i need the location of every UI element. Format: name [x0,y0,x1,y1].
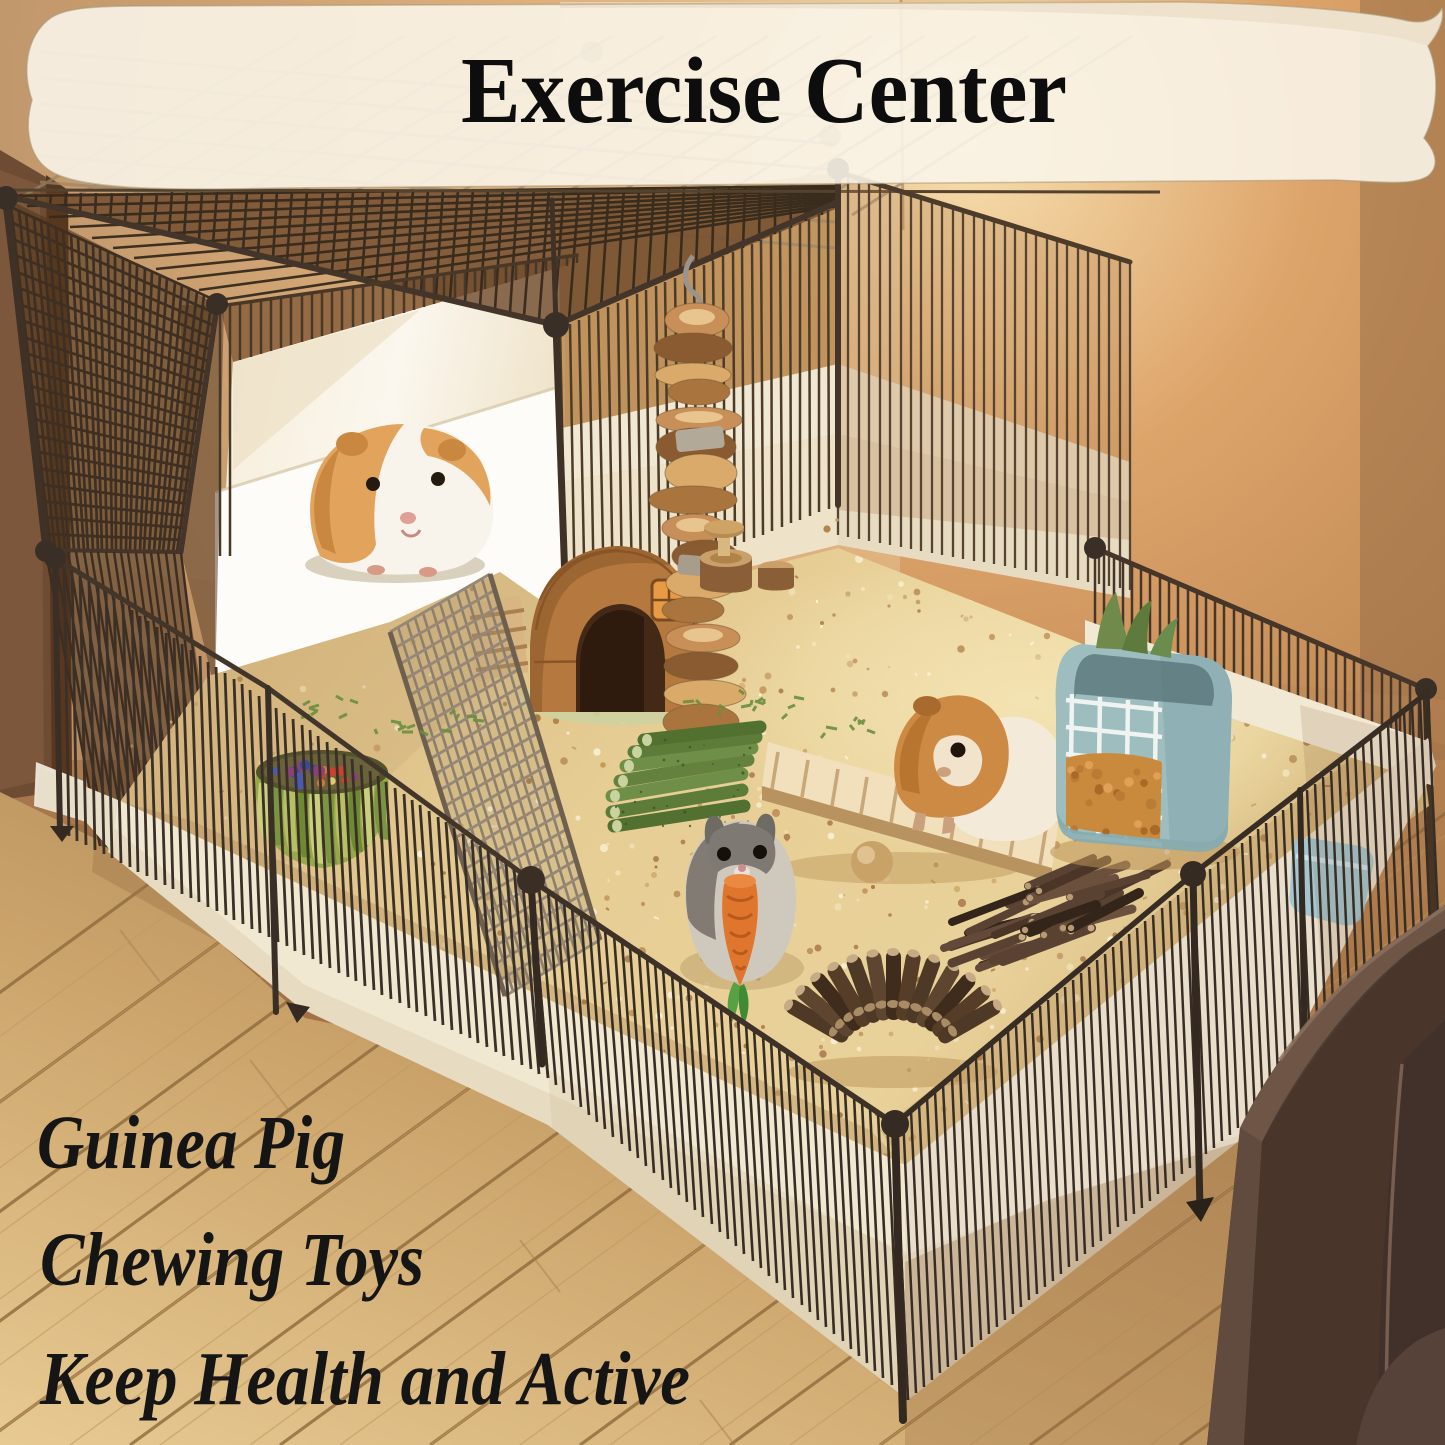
svg-text:Keep Health and Active: Keep Health and Active [39,1337,690,1421]
svg-text:Chewing Toys: Chewing Toys [40,1218,424,1302]
svg-text:Exercise Center: Exercise Center [461,39,1067,143]
svg-text:Guinea Pig: Guinea Pig [37,1101,345,1185]
